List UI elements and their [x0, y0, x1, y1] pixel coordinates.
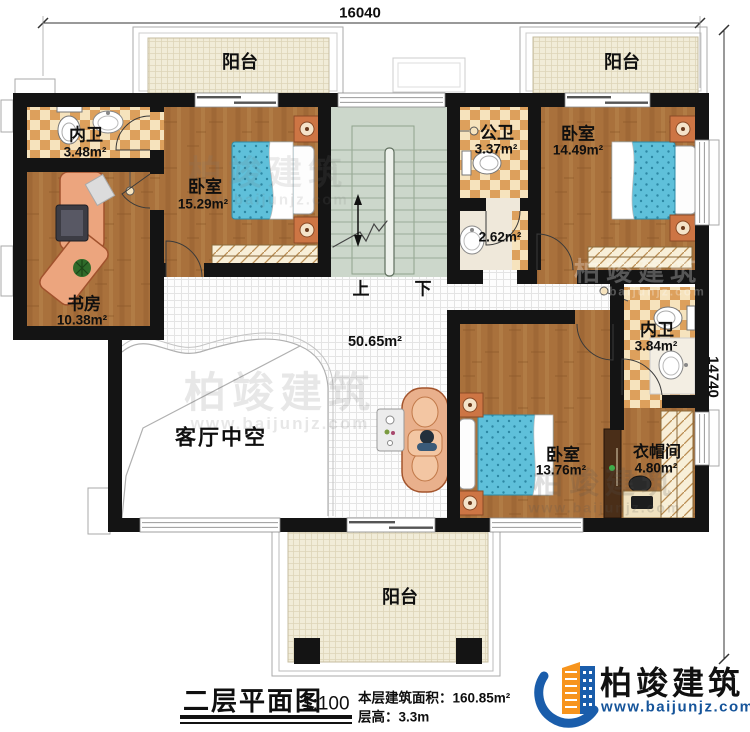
label-bedroom-top-left-name: 卧室: [188, 179, 222, 196]
label-bedroom-bottom-name: 卧室: [546, 447, 580, 464]
label-hall-area: 50.65m²: [348, 335, 402, 350]
hall-sofa: [402, 388, 448, 492]
corridor-floor: [447, 284, 610, 310]
window-right-bottom: [695, 412, 709, 465]
dimension-right: 14740: [706, 356, 721, 398]
label-bath-right-name: 内卫: [640, 322, 674, 339]
label-living-void: 客厅中空: [175, 428, 267, 449]
label-bath-top-left-area: 3.48m²: [64, 145, 107, 159]
stair-rail: [385, 148, 394, 276]
label-bedroom-top-right-area: 14.49m²: [553, 143, 603, 157]
chair: [629, 476, 651, 492]
laptop: [631, 496, 653, 509]
label-wash-area: 2.62m²: [479, 230, 522, 244]
label-stairs-up: 上: [353, 281, 370, 298]
label-cloakroom-name: 衣帽间: [633, 445, 681, 461]
label-bedroom-bottom-area: 13.76m²: [536, 463, 586, 477]
label-public-bath-name: 公卫: [480, 125, 514, 142]
sliding-door-balcony-top-left: [195, 93, 278, 107]
person: [420, 430, 434, 444]
floor-plan-page: 柏竣建筑 www.baijunjz.com 柏竣建筑 www.baijunjz.…: [0, 0, 750, 732]
plan-building-area: 本层建筑面积：160.85m²: [358, 691, 510, 705]
window-bedroom-bottom: [490, 518, 583, 532]
hall-side-table: [377, 409, 404, 451]
label-balcony-top-left: 阳台: [222, 53, 258, 71]
plan-scale: 1:100: [302, 695, 350, 714]
sliding-door-balcony-top-right: [565, 93, 650, 107]
label-bedroom-top-right-name: 卧室: [561, 126, 595, 143]
plan-floor-height: 层高：3.3m: [358, 710, 429, 724]
window-right-top: [695, 140, 709, 225]
title-underline: [180, 715, 352, 724]
company-logo-icon: [532, 650, 606, 732]
label-study-name: 书房: [67, 296, 101, 313]
label-study-area: 10.38m²: [57, 313, 107, 327]
wardrobe-top-right: [588, 247, 692, 268]
label-balcony-top-right: 阳台: [604, 53, 640, 71]
label-cloakroom-area: 4.80m²: [635, 461, 678, 475]
label-bath-top-left-name: 内卫: [69, 127, 103, 144]
company-name: 柏竣建筑: [600, 658, 744, 704]
floor-plan-drawing: [0, 0, 750, 732]
company-website: www.baijunjz.com: [601, 699, 750, 716]
living-void: [122, 333, 333, 518]
label-bedroom-top-left-area: 15.29m²: [178, 197, 228, 211]
cloakroom-door-leaf: [604, 429, 621, 518]
sliding-door-balcony-bottom: [347, 518, 435, 532]
label-public-bath-area: 3.37m²: [475, 142, 518, 156]
window-stairs-top: [338, 93, 445, 107]
window-living-bottom: [140, 518, 280, 532]
label-stairs-down: 下: [415, 281, 432, 298]
label-balcony-bottom: 阳台: [382, 588, 418, 606]
label-bath-right-area: 3.84m²: [635, 339, 678, 353]
dimension-top: 16040: [339, 6, 381, 21]
